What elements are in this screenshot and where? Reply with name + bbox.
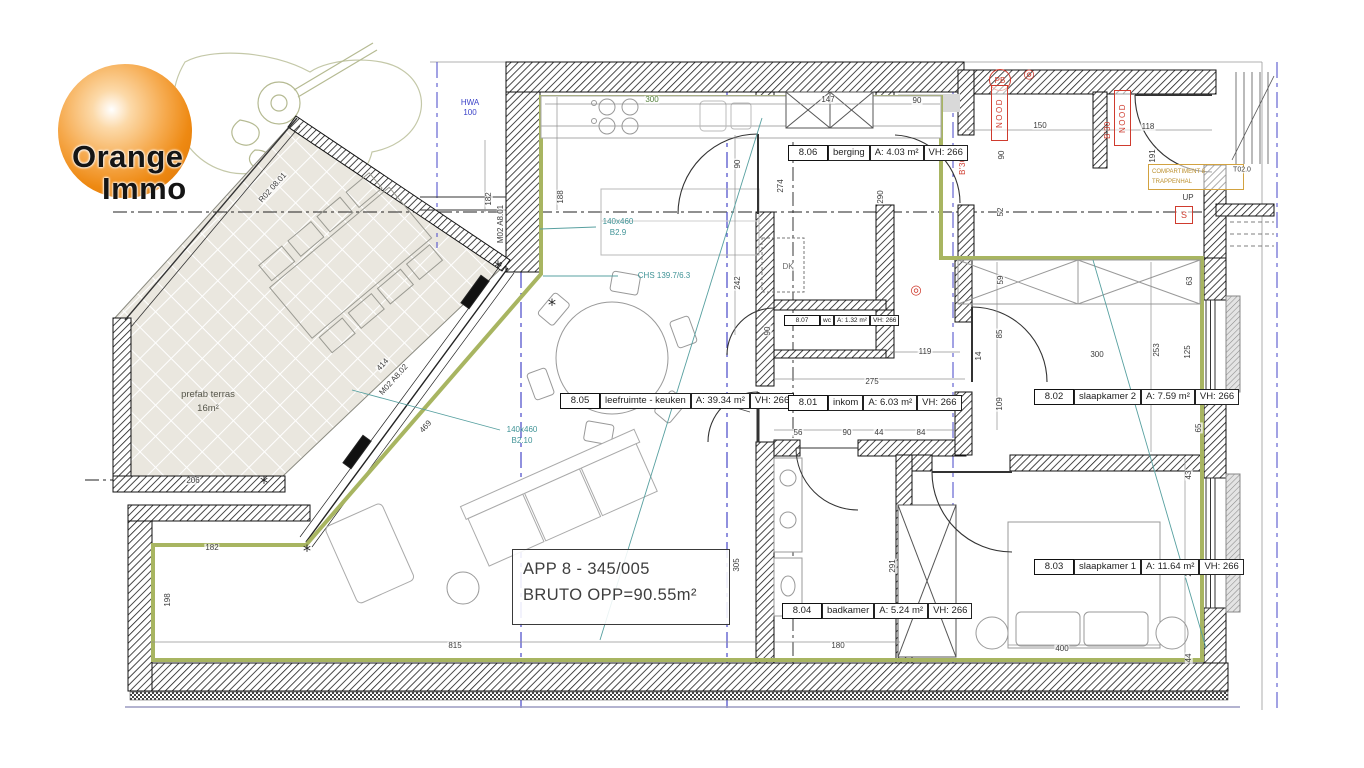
dimension-label: 118 [1141,123,1156,131]
dimension-label: 14 [975,351,983,362]
dimension-label: 291 [889,558,897,573]
nood-exit-label: NOOD [1114,90,1131,146]
dimension-label: 182 [485,191,493,206]
logo-text-line2: Immo [102,171,187,207]
dimension-label: 300 [644,96,659,104]
dimension-label: B2.10 [511,437,534,445]
dimension-label: 300 [1089,351,1104,359]
room-label-8.07: 8.07wcA: 1.32 m²VH: 266 [784,314,899,326]
dimension-label: CHS 139.7/6.3 [637,272,691,280]
bathroom-fixtures [774,458,802,616]
room-label-8.03: 8.03slaapkamer 1A: 11.64 m²VH: 266 [1034,558,1244,575]
room-area: A: 7.59 m² [1141,389,1195,405]
insulation-band [130,692,1228,700]
bed-slaapkamer1 [976,522,1188,649]
room-area: A: 5.24 m² [874,603,928,619]
dimension-label: 43 [1185,470,1193,481]
room-name: slaapkamer 1 [1074,559,1141,575]
dimension-label: T02.0 [1232,166,1252,173]
room-name: wc [820,315,834,326]
room-num: 8.04 [782,603,822,619]
room-area: A: 1.32 m² [834,315,870,326]
dimension-label: 198 [164,592,172,607]
room-label-8.05: 8.05leefruimte - keukenA: 39.34 m²VH: 26… [560,392,794,409]
dimension-label: 274 [777,178,785,193]
dimension-label: 182 [204,544,219,552]
compartment-label: COMPARTIMENT 8 TRAPPENHAL [1148,164,1244,190]
svg-text:*: * [494,257,502,276]
dimension-label: 90 [912,97,923,105]
dimension-label: 275 [864,378,879,386]
dimension-label: 90 [842,429,853,437]
dimension-label: 147 [820,96,835,104]
room-vh: VH: 266 [1195,389,1239,405]
dimension-label: HWA [460,99,480,107]
staircase [1230,72,1274,246]
svg-text:*: * [260,473,268,492]
room-num: 8.03 [1034,559,1074,575]
room-label-8.04: 8.04badkamerA: 5.24 m²VH: 266 [782,602,972,619]
compartment-line2: TRAPPENHAL [1152,177,1240,187]
dimension-label: 253 [1153,342,1161,357]
dimension-label: UP [1181,194,1194,202]
dimension-label: 206 [185,477,200,485]
dimension-label: 44 [1185,653,1193,664]
dimension-label: M02 A8.01 [497,204,505,244]
room-area: A: 6.03 m² [863,395,917,411]
dimension-label: 85 [996,329,1004,340]
dimension-label: 100 [462,109,477,117]
dimension-label: 119 [918,348,933,356]
dimension-label: 52 [997,207,1005,218]
technical-shaft [898,505,956,657]
dimension-label: 84 [916,429,927,437]
room-num: 8.06 [788,145,828,161]
floorplan-page: * * * * Orange Immo APP 8 - 345/005 BRUT… [0,0,1364,768]
dimension-label: 290 [877,189,885,204]
dimension-label: 180 [830,642,845,650]
svg-text:*: * [303,541,311,560]
s-marker: S [1175,206,1193,224]
dimension-label: 90 [764,326,772,337]
terrace-label-line2: 16m² [148,402,268,416]
room-area: A: 4.03 m² [870,145,924,161]
room-vh: VH: 266 [1199,559,1243,575]
room-num: 8.05 [560,393,600,409]
dimension-label: 150 [1032,122,1047,130]
fire-safety-symbol: ◎ [910,282,921,298]
dimension-label: 815 [447,642,462,650]
dimension-label: 400 [1054,645,1069,653]
room-vh: VH: 266 [928,603,972,619]
dimension-label: 90 [734,159,742,170]
dimension-label: 109 [996,396,1004,411]
dimension-label: B'30 [1104,120,1112,140]
nood-exit-label: NOOD [991,85,1008,141]
dimension-label: 65 [1195,423,1203,434]
room-vh: VH: 266 [870,315,900,326]
wardrobe-slaapkamer2 [958,260,1200,304]
dimension-label: 59 [997,275,1005,286]
dimension-label: B2.9 [609,229,627,237]
room-name: leefruimte - keuken [600,393,691,409]
room-vh: VH: 266 [917,395,961,411]
room-label-8.01: 8.01inkomA: 6.03 m²VH: 266 [788,394,962,411]
dimension-label: 44 [874,429,885,437]
terrace-label: prefab terras 16m² [148,388,268,417]
dimension-label: 125 [1184,344,1192,359]
fire-safety-symbol: ◎ [1023,66,1034,82]
room-num: 8.02 [1034,389,1074,405]
room-area: A: 39.34 m² [691,393,750,409]
room-num: 8.07 [784,315,820,326]
svg-text:*: * [548,295,556,314]
dimension-label: 56 [793,429,804,437]
dimension-label: 90 [998,150,1006,161]
logo-text-line1: Orange [72,139,184,175]
room-name: badkamer [822,603,874,619]
kitchen-counter [541,96,941,138]
compartment-line1: COMPARTIMENT 8 [1152,167,1240,177]
room-label-8.02: 8.02slaapkamer 2A: 7.59 m²VH: 266 [1034,388,1239,405]
dimension-label: 140x460 [602,218,635,226]
room-name: slaapkamer 2 [1074,389,1141,405]
logo: Orange Immo [56,62,286,212]
room-num: 8.01 [788,395,828,411]
room-name: berging [828,145,870,161]
room-name: inkom [828,395,863,411]
terrace-label-line1: prefab terras [148,388,268,402]
dimension-label: 305 [733,557,741,572]
dimension-label: 191 [1149,148,1157,163]
room-area: A: 11.64 m² [1141,559,1199,575]
apartment-area: BRUTO OPP=90.55m² [523,583,719,609]
apartment-title-box: APP 8 - 345/005 BRUTO OPP=90.55m² [512,549,730,625]
dimension-label: DK [781,263,794,271]
dimension-label: 140x460 [506,426,539,434]
dimension-label: 188 [557,189,565,204]
room-vh: VH: 266 [924,145,968,161]
dimension-label: 63 [1186,276,1194,287]
apartment-id: APP 8 - 345/005 [523,557,719,583]
dimension-label: 242 [734,275,742,290]
room-label-8.06: 8.06bergingA: 4.03 m²VH: 266 [788,144,968,161]
